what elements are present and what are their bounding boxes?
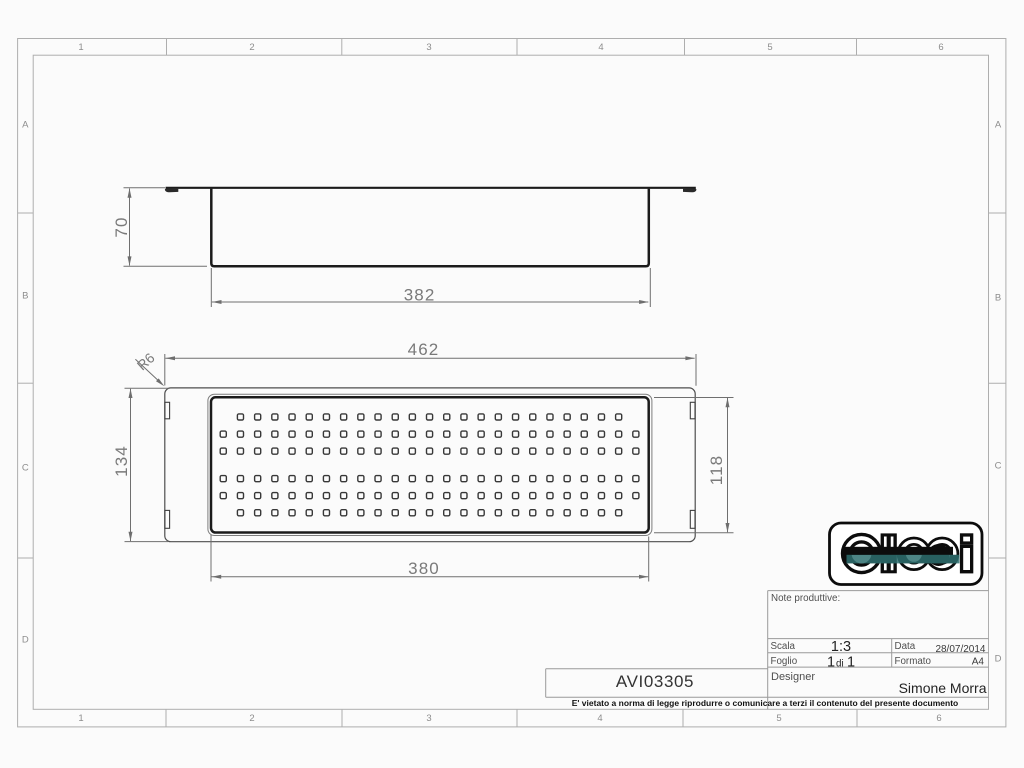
svg-text:B: B	[995, 293, 1001, 304]
svg-text:A: A	[995, 120, 1002, 131]
svg-text:Foglio: Foglio	[771, 656, 798, 667]
svg-text:C: C	[22, 463, 29, 474]
svg-text:2: 2	[249, 713, 254, 724]
svg-text:28/07/2014: 28/07/2014	[935, 644, 985, 655]
svg-text:1: 1	[847, 654, 855, 670]
svg-text:5: 5	[767, 42, 772, 53]
svg-text:462: 462	[408, 340, 440, 359]
svg-text:1: 1	[78, 713, 83, 724]
svg-text:A: A	[22, 120, 29, 131]
svg-text:AVI03305: AVI03305	[616, 672, 694, 691]
svg-text:Scala: Scala	[771, 641, 796, 652]
svg-text:118: 118	[707, 455, 726, 485]
svg-text:2: 2	[249, 42, 254, 53]
svg-text:E' vietato a norma di legge ri: E' vietato a norma di legge riprodurre o…	[572, 698, 958, 708]
svg-text:6: 6	[936, 713, 941, 724]
svg-text:382: 382	[404, 286, 436, 305]
svg-text:3: 3	[426, 42, 431, 53]
svg-text:Data: Data	[895, 641, 916, 652]
svg-text:Formato: Formato	[895, 656, 932, 667]
svg-text:5: 5	[776, 713, 781, 724]
svg-text:A4: A4	[972, 656, 985, 667]
svg-text:Simone Morra: Simone Morra	[899, 680, 987, 696]
svg-text:4: 4	[598, 42, 603, 53]
svg-text:4: 4	[597, 713, 602, 724]
svg-text:1:3: 1:3	[831, 639, 851, 655]
svg-text:B: B	[22, 291, 28, 302]
svg-text:70: 70	[112, 216, 131, 237]
svg-text:D: D	[22, 635, 29, 646]
svg-text:di: di	[836, 658, 844, 669]
svg-text:134: 134	[112, 445, 131, 477]
svg-text:6: 6	[938, 42, 943, 53]
svg-text:3: 3	[426, 713, 431, 724]
svg-text:C: C	[995, 461, 1002, 472]
svg-text:Note produttive:: Note produttive:	[771, 593, 840, 604]
svg-text:Designer: Designer	[771, 671, 815, 683]
svg-text:D: D	[995, 654, 1002, 665]
svg-text:380: 380	[408, 559, 440, 578]
svg-text:1: 1	[78, 42, 83, 53]
svg-text:1: 1	[827, 654, 835, 670]
